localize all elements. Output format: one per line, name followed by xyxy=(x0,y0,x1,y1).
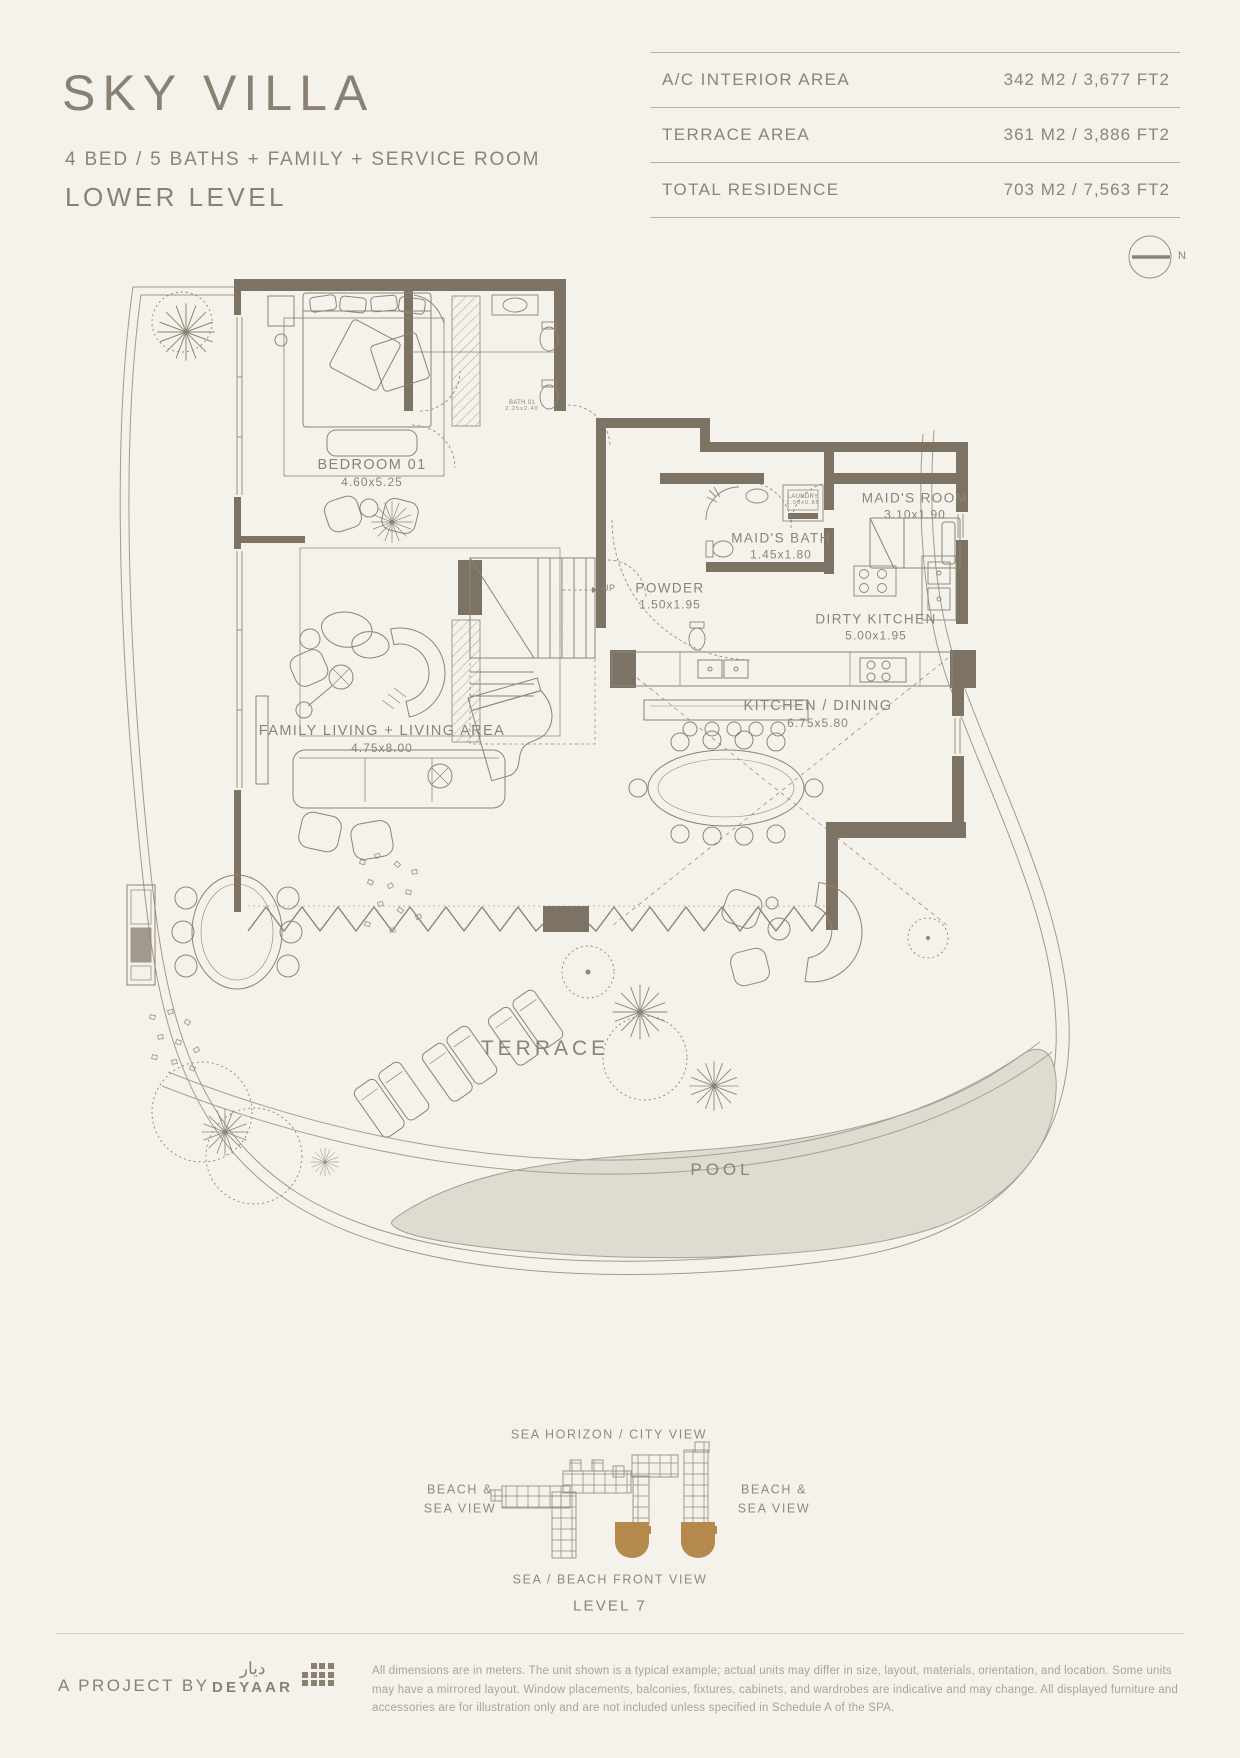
footer-divider xyxy=(55,1633,1185,1634)
row-value: 703 M2 / 7,563 FT2 xyxy=(1004,180,1170,200)
gravel-scatter xyxy=(150,853,422,1071)
room-label-dirty-kitchen: DIRTY KITCHEN5.00x1.95 xyxy=(815,612,936,643)
table-row: TOTAL RESIDENCE 703 M2 / 7,563 FT2 xyxy=(650,162,1180,218)
room-label-maids-bath: MAID'S BATH1.45x1.80 xyxy=(731,531,831,562)
key-plan-drawing xyxy=(491,1442,717,1558)
view-label-right: BEACH & SEA VIEW xyxy=(738,1481,811,1520)
deyaar-logo: ديار DEYAAR xyxy=(212,1660,334,1696)
floorplan-drawing xyxy=(0,0,1240,1758)
deyaar-wordmark: DEYAAR xyxy=(212,1679,293,1696)
staircase xyxy=(470,558,598,744)
room-label-laundry: LAUNDRY1.00x0.85 xyxy=(786,494,819,506)
maids-room-furniture xyxy=(870,518,960,568)
room-label-bath-01: BATH 012.25x2.40 xyxy=(505,400,538,412)
table-row: A/C INTERIOR AREA 342 M2 / 3,677 FT2 xyxy=(650,52,1180,107)
room-label-kitchen-dining: KITCHEN / DINING6.75x5.80 xyxy=(744,698,893,730)
terrace-label: TERRACE xyxy=(481,1037,609,1061)
area-table: A/C INTERIOR AREA 342 M2 / 3,677 FT2 TER… xyxy=(650,52,1180,218)
compass: N xyxy=(1126,233,1196,281)
living-furniture xyxy=(256,548,566,861)
room-label-maids-room: MAID'S ROOM3.10x1.90 xyxy=(862,491,968,522)
table-row: TERRACE AREA 361 M2 / 3,886 FT2 xyxy=(650,107,1180,162)
terrace-furniture xyxy=(127,875,868,1140)
level-title: LOWER LEVEL xyxy=(65,182,287,213)
room-label-family-living: FAMILY LIVING + LIVING AREA4.75x8.00 xyxy=(259,723,505,755)
page-subtitle: 4 BED / 5 BATHS + FAMILY + SERVICE ROOM xyxy=(65,149,540,171)
page-title: SKY VILLA xyxy=(62,64,374,122)
key-plan-level-label: LEVEL 7 xyxy=(573,1598,647,1615)
view-label-bottom: SEA / BEACH FRONT VIEW xyxy=(513,1570,708,1589)
bedroom-furniture xyxy=(268,293,444,536)
walls xyxy=(234,279,976,932)
row-value: 361 M2 / 3,886 FT2 xyxy=(1004,125,1170,145)
row-label: TOTAL RESIDENCE xyxy=(662,180,840,200)
folding-doors xyxy=(248,906,827,931)
stair-up-label: UP xyxy=(602,583,616,593)
deyaar-logo-mark xyxy=(302,1663,334,1686)
row-label: A/C INTERIOR AREA xyxy=(662,70,850,90)
dirty-kitchen-fixtures xyxy=(854,556,956,620)
view-label-left: BEACH & SEA VIEW xyxy=(424,1481,497,1520)
row-value: 342 M2 / 3,677 FT2 xyxy=(1004,70,1170,90)
room-label-bedroom-01: BEDROOM 014.60x5.25 xyxy=(317,457,426,489)
brochure-page: SKY VILLA 4 BED / 5 BATHS + FAMILY + SER… xyxy=(0,0,1240,1758)
bath-fixtures xyxy=(411,295,558,409)
wardrobes xyxy=(452,296,480,742)
project-by-label: A PROJECT BY xyxy=(58,1676,210,1696)
row-label: TERRACE AREA xyxy=(662,125,810,145)
key-plan-highlighted-units xyxy=(615,1522,717,1558)
deyaar-arabic-wordmark: ديار xyxy=(240,1660,266,1677)
kitchen-dining-furniture xyxy=(612,652,952,845)
room-label-powder: POWDER1.50x1.95 xyxy=(635,581,704,612)
pool-label: POOL xyxy=(690,1160,753,1180)
disclaimer-text: All dimensions are in meters. The unit s… xyxy=(372,1662,1190,1718)
compass-north-label: N xyxy=(1178,250,1187,262)
view-label-top: SEA HORIZON / CITY VIEW xyxy=(511,1425,707,1444)
